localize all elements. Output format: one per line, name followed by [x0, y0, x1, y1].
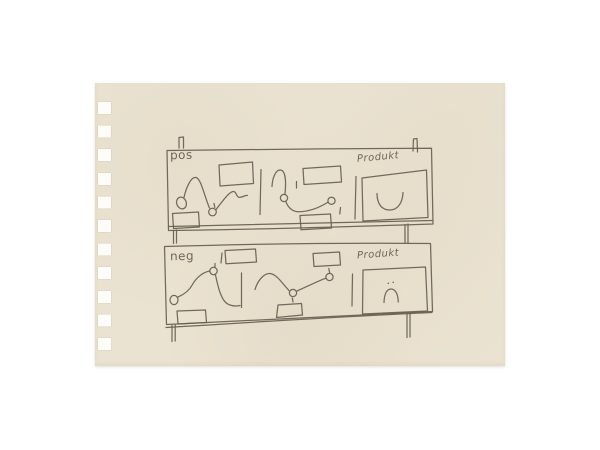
box-tick	[221, 253, 222, 263]
neg-product-cell	[363, 267, 428, 314]
label-box-bottom	[177, 310, 207, 324]
end-node-ring	[326, 273, 333, 280]
face-dot-right	[392, 282, 394, 284]
panel-connectors	[174, 224, 409, 244]
label-box-top	[225, 249, 257, 264]
falling-curve	[216, 275, 241, 306]
node-tick	[214, 204, 215, 208]
pos-divider-1	[260, 170, 261, 215]
label-box-top	[303, 166, 342, 185]
start-ring	[170, 295, 178, 304]
rising-curve	[178, 271, 210, 297]
smile-curve	[377, 193, 403, 211]
left-node-ring	[280, 194, 287, 201]
valley-node-ring	[289, 289, 296, 296]
pos-panel-top-tab-right	[413, 139, 418, 153]
rising-curve	[297, 278, 326, 291]
pos-panel-top-tab-left	[179, 137, 184, 148]
label-box-top	[313, 252, 341, 267]
hump-curve	[255, 274, 289, 291]
wavy-curve-a	[184, 177, 210, 208]
neg-label: neg	[170, 249, 194, 263]
pos-product-cell	[362, 170, 428, 221]
pos-divider-2	[355, 177, 356, 220]
pos-cell-2	[272, 166, 342, 230]
valley-curve	[286, 202, 328, 212]
neg-divider-2	[352, 274, 353, 306]
end-tick	[329, 269, 330, 273]
pos-label: pos	[170, 148, 193, 162]
label-box-bottom	[277, 304, 303, 318]
wavy-curve-b	[216, 192, 248, 210]
hook-curve	[272, 170, 286, 194]
top-node-ring	[210, 267, 217, 274]
valley-node-ring	[209, 208, 217, 216]
valley-tick	[292, 298, 293, 302]
product-box	[362, 170, 428, 221]
photo-canvas: pos Produkt neg Produkt	[0, 0, 600, 450]
start-ring	[175, 196, 188, 211]
pos-cell-1	[173, 162, 254, 229]
frown-arc	[384, 289, 398, 303]
label-box-top	[219, 162, 254, 186]
face-dot-left	[388, 283, 390, 285]
neg-cell-2	[255, 252, 341, 318]
tick-right	[340, 208, 341, 215]
sketch-drawing	[0, 0, 600, 450]
right-node-ring	[328, 197, 335, 204]
